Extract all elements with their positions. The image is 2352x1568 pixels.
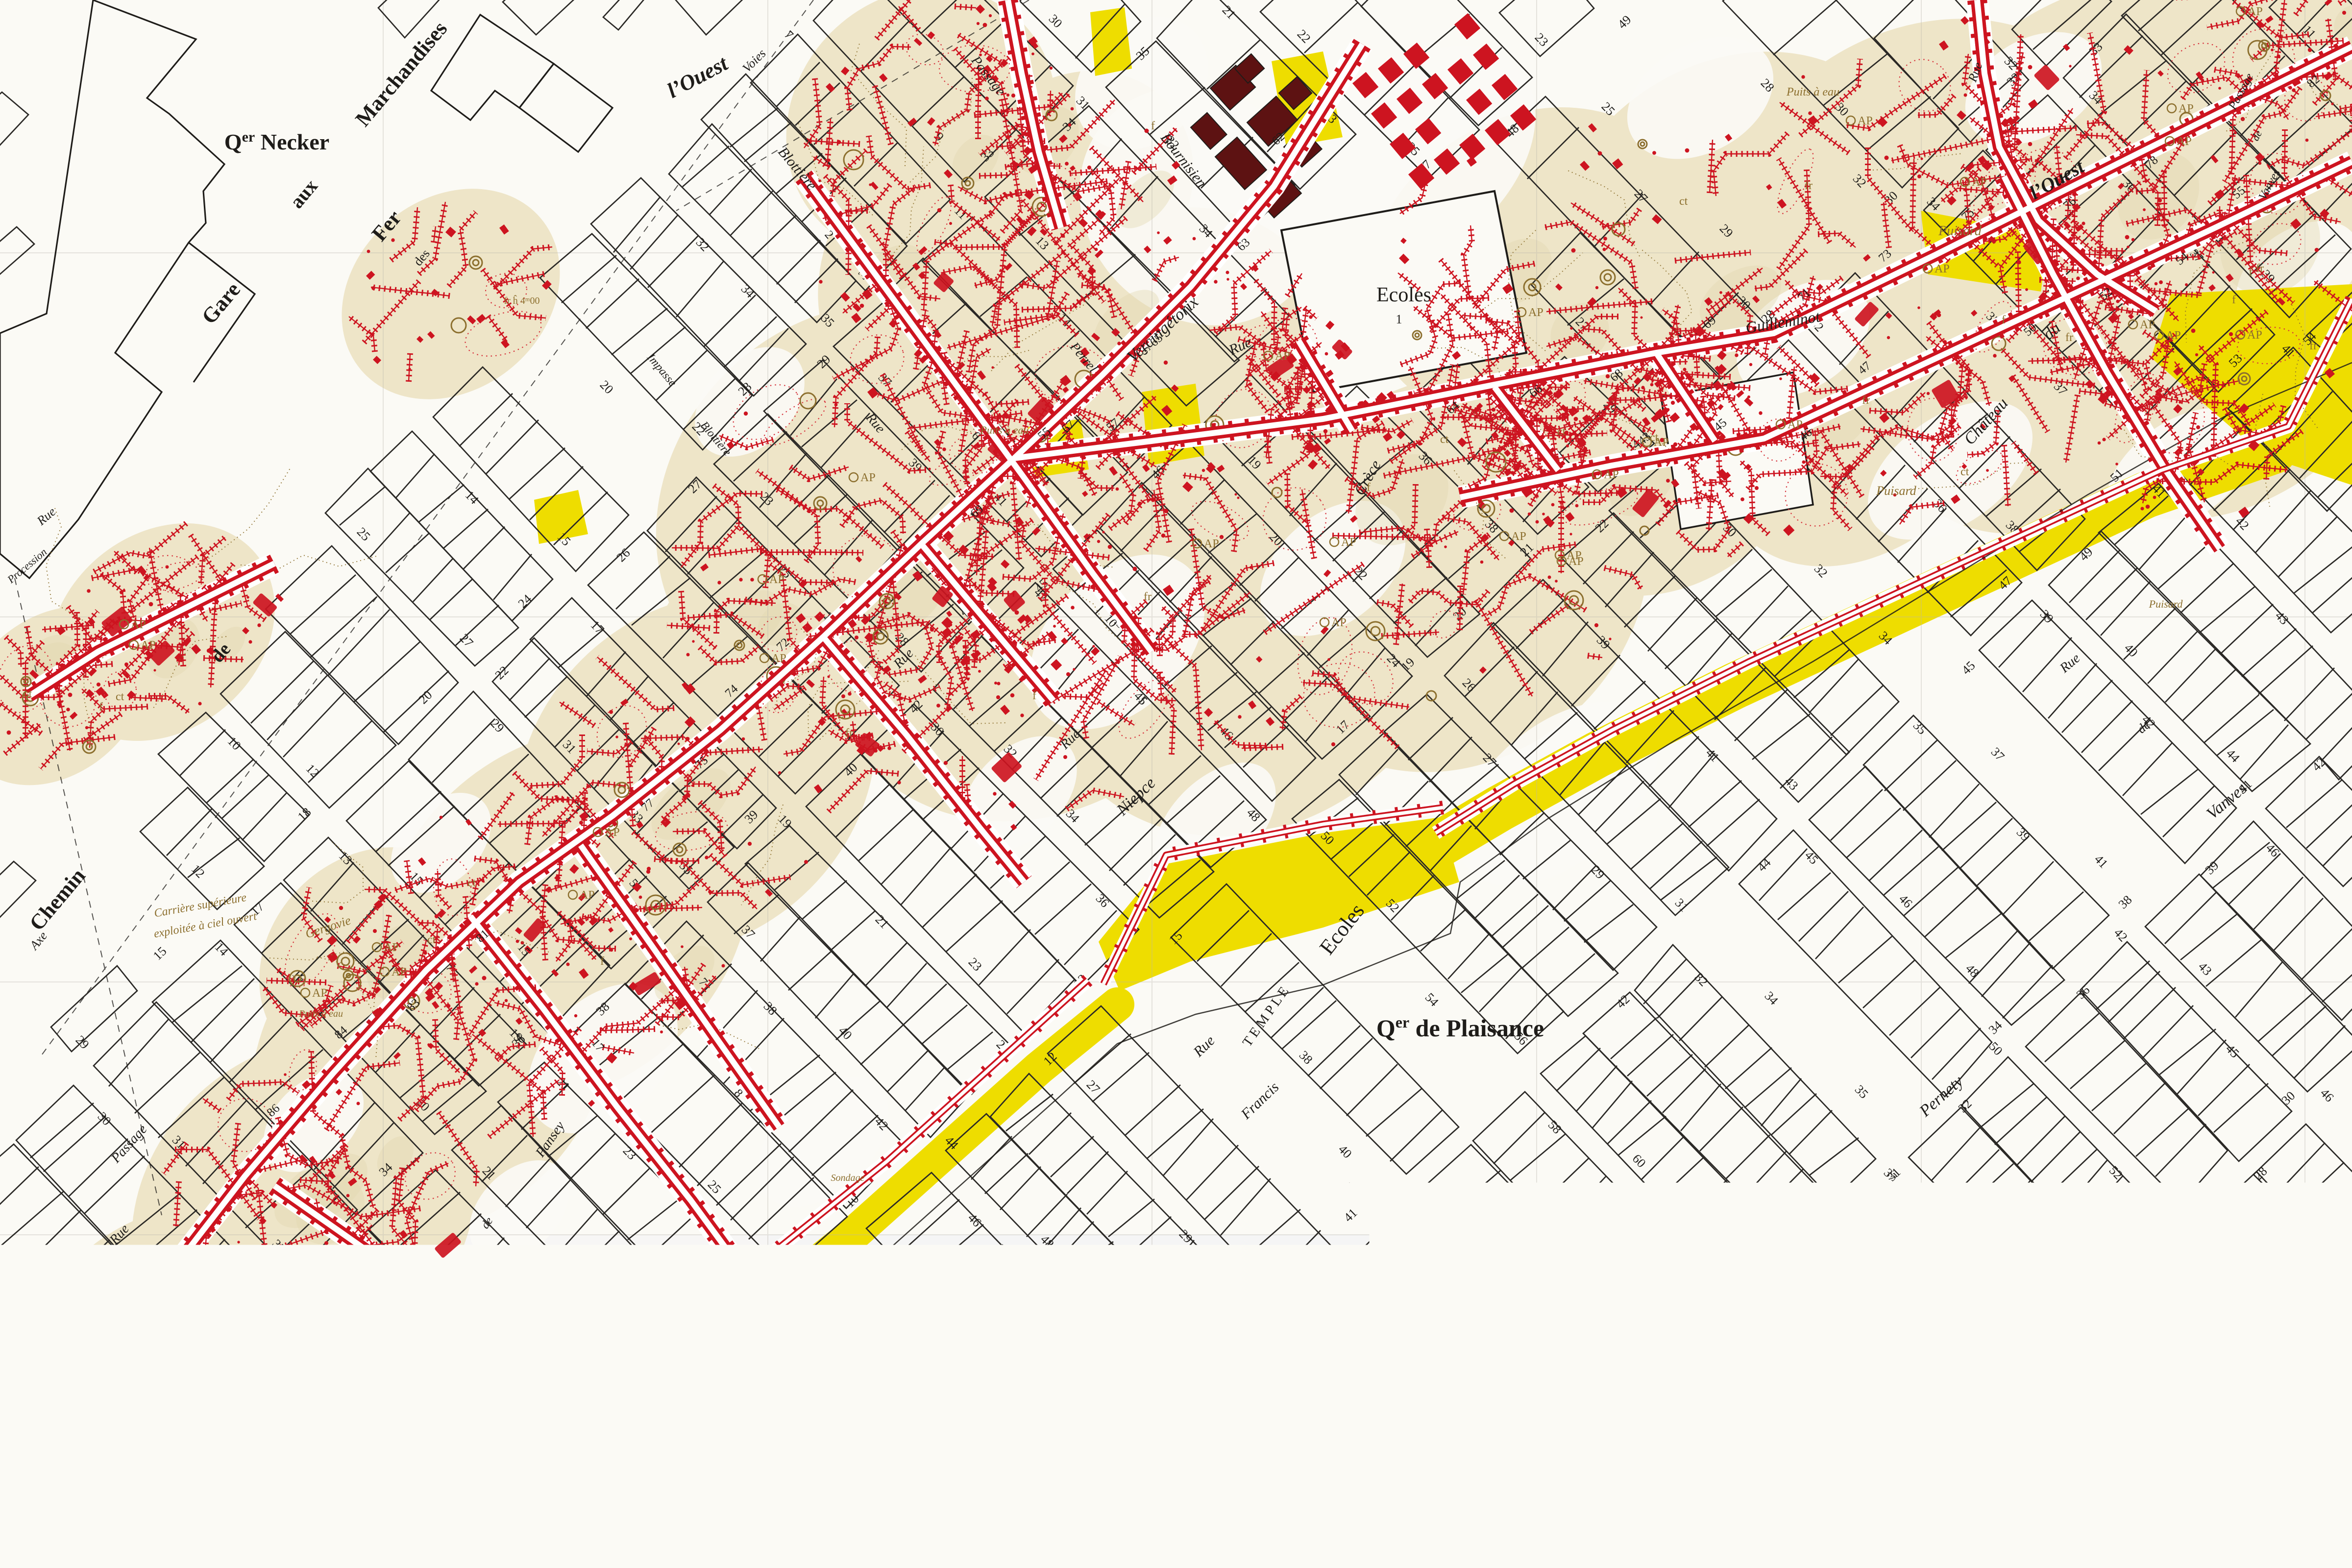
svg-text:f: f bbox=[2002, 314, 2006, 326]
svg-text:AP: AP bbox=[1567, 549, 1582, 562]
svg-text:f: f bbox=[600, 955, 604, 968]
svg-text:fr ĥ 4ᵐ00: fr ĥ 4ᵐ00 bbox=[504, 294, 539, 306]
svg-text:AP: AP bbox=[860, 471, 876, 484]
svg-text:AP: AP bbox=[312, 987, 327, 1000]
svg-text:f: f bbox=[1032, 689, 1036, 702]
svg-text:AP: AP bbox=[771, 652, 786, 665]
svg-text:ct: ct bbox=[1679, 195, 1688, 208]
svg-text:AP: AP bbox=[131, 618, 146, 631]
svg-text:AP: AP bbox=[2166, 329, 2181, 342]
svg-text:Puits à eau: Puits à eau bbox=[298, 1008, 343, 1019]
svg-text:Qer Necker: Qer Necker bbox=[224, 129, 329, 155]
svg-text:fr: fr bbox=[2309, 340, 2317, 352]
svg-text:f: f bbox=[1367, 481, 1371, 494]
svg-text:ct: ct bbox=[1440, 433, 1449, 446]
svg-text:ct: ct bbox=[1557, 425, 1566, 438]
svg-text:Puits à eau: Puits à eau bbox=[1786, 86, 1839, 98]
svg-text:AP: AP bbox=[1935, 263, 1950, 275]
svg-text:ct: ct bbox=[24, 687, 32, 700]
svg-text:AP: AP bbox=[605, 826, 620, 839]
svg-text:AP: AP bbox=[1788, 418, 1803, 431]
svg-text:fr: fr bbox=[845, 727, 853, 739]
svg-text:AP: AP bbox=[2248, 5, 2263, 18]
svg-text:f: f bbox=[1151, 120, 1155, 132]
svg-text:AP: AP bbox=[1275, 350, 1290, 363]
svg-text:fr: fr bbox=[1805, 179, 1813, 192]
svg-text:f: f bbox=[2249, 266, 2253, 279]
svg-text:ct: ct bbox=[1650, 431, 1659, 444]
svg-text:AP: AP bbox=[1972, 176, 1987, 189]
svg-text:Puisard: Puisard bbox=[1938, 223, 1982, 239]
svg-text:AP: AP bbox=[1858, 115, 1873, 127]
svg-text:AP: AP bbox=[1528, 306, 1543, 319]
svg-text:AP: AP bbox=[580, 889, 595, 902]
svg-text:Puisard: Puisard bbox=[2149, 598, 2183, 610]
svg-text:ct: ct bbox=[467, 877, 476, 889]
svg-text:AP: AP bbox=[392, 966, 407, 979]
svg-text:AP: AP bbox=[384, 941, 399, 954]
svg-text:Puits à eau: Puits à eau bbox=[980, 424, 1029, 436]
svg-text:f: f bbox=[99, 701, 103, 713]
svg-text:AP: AP bbox=[1204, 538, 1219, 550]
svg-text:Puisard: Puisard bbox=[1876, 484, 1916, 498]
svg-text:fr: fr bbox=[2256, 262, 2264, 275]
svg-text:ct: ct bbox=[116, 690, 124, 703]
svg-text:ct: ct bbox=[1960, 465, 1969, 478]
svg-text:AP: AP bbox=[141, 639, 156, 652]
svg-text:Ecoles: Ecoles bbox=[1376, 284, 1431, 306]
svg-text:AP: AP bbox=[1331, 616, 1347, 629]
svg-text:AP: AP bbox=[2140, 318, 2155, 331]
svg-text:f: f bbox=[2232, 294, 2236, 306]
svg-text:fr: fr bbox=[2065, 331, 2073, 344]
svg-text:fr: fr bbox=[1144, 590, 1151, 603]
svg-text:Sondage: Sondage bbox=[831, 1173, 865, 1183]
svg-text:AP: AP bbox=[2177, 135, 2192, 148]
svg-text:AP: AP bbox=[2247, 329, 2262, 342]
svg-text:fr: fr bbox=[1862, 394, 1870, 407]
svg-text:AP: AP bbox=[1511, 530, 1526, 543]
svg-text:ct: ct bbox=[427, 933, 436, 946]
svg-text:f: f bbox=[779, 567, 783, 580]
svg-text:AP: AP bbox=[1604, 468, 1619, 481]
svg-text:1: 1 bbox=[1396, 312, 1402, 326]
svg-text:AP: AP bbox=[1341, 536, 1356, 549]
svg-text:AP: AP bbox=[2179, 102, 2194, 115]
svg-text:f: f bbox=[273, 1340, 277, 1353]
